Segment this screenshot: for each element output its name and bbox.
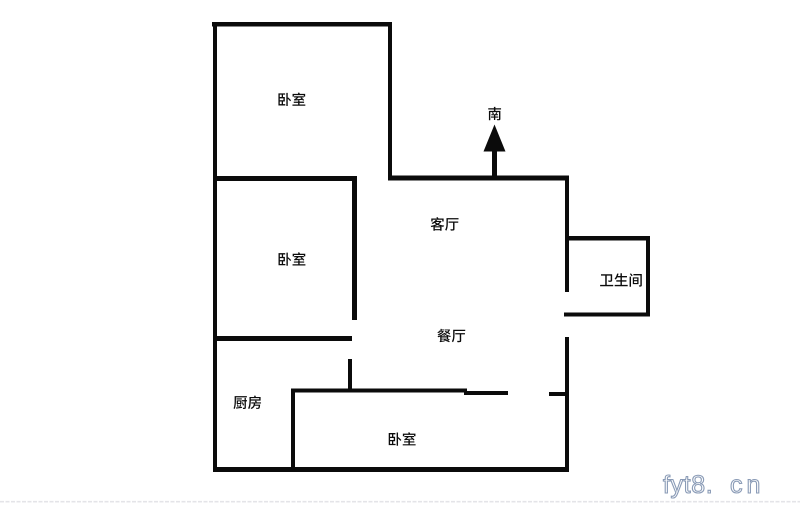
- svg-text:fyt8.: fyt8.: [663, 471, 713, 499]
- svg-text:cn: cn: [730, 471, 764, 499]
